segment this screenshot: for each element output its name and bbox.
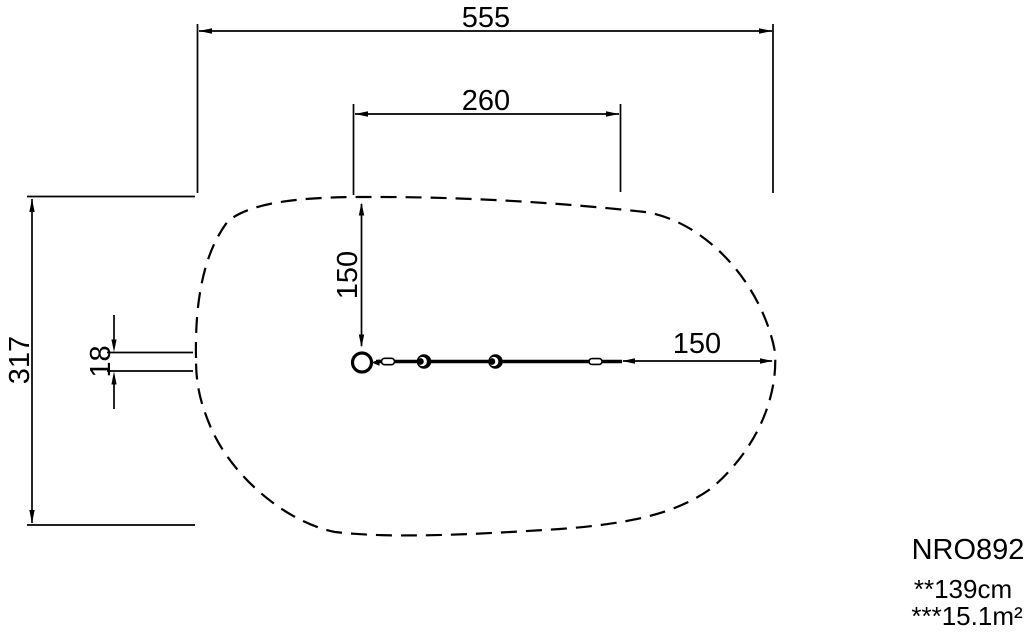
arrowhead-right bbox=[606, 111, 619, 116]
product-top-view bbox=[353, 353, 623, 372]
dim-260-label: 260 bbox=[462, 85, 510, 117]
fall-height-note: **139cm bbox=[914, 574, 1012, 604]
arrowhead-down bbox=[359, 335, 364, 348]
dim-317-label: 317 bbox=[4, 336, 36, 384]
ball-core bbox=[417, 358, 424, 365]
product-code: NRO892 bbox=[912, 534, 1024, 566]
safety-area-note: ***15.1m² bbox=[911, 601, 1023, 631]
ball-element-2 bbox=[488, 354, 503, 369]
cable-tensioner-left bbox=[382, 358, 395, 364]
ball-element-1 bbox=[417, 354, 432, 369]
dimension-260: 260 bbox=[354, 85, 621, 195]
arrowhead-right bbox=[759, 28, 772, 33]
dim-150h-label: 150 bbox=[673, 328, 721, 360]
dim-555-label: 555 bbox=[462, 2, 510, 34]
arrowhead-right bbox=[760, 358, 773, 363]
ball-core bbox=[489, 358, 496, 365]
product-info: NRO892 **139cm ***15.1m² bbox=[911, 534, 1024, 631]
arrowhead-down bbox=[29, 510, 34, 523]
arrowhead-left bbox=[622, 358, 635, 363]
arrowhead-up bbox=[359, 203, 364, 216]
arrowhead-left bbox=[199, 28, 212, 33]
dim-18-label: 18 bbox=[85, 345, 117, 377]
dimension-18: 18 bbox=[85, 315, 193, 409]
arrowhead-left bbox=[355, 111, 368, 116]
dimension-150-horizontal: 150 bbox=[622, 328, 773, 364]
dimension-150-vertical: 150 bbox=[332, 203, 364, 348]
dim-150v-label: 150 bbox=[332, 251, 364, 299]
safety-zone-outline bbox=[196, 197, 775, 535]
technical-drawing-page: 555 260 317 18 bbox=[0, 0, 1024, 636]
arrowhead-up bbox=[29, 199, 34, 212]
post-circle bbox=[353, 353, 372, 372]
technical-drawing-canvas: 555 260 317 18 bbox=[0, 0, 1024, 636]
cable-tensioner-right bbox=[589, 359, 602, 365]
